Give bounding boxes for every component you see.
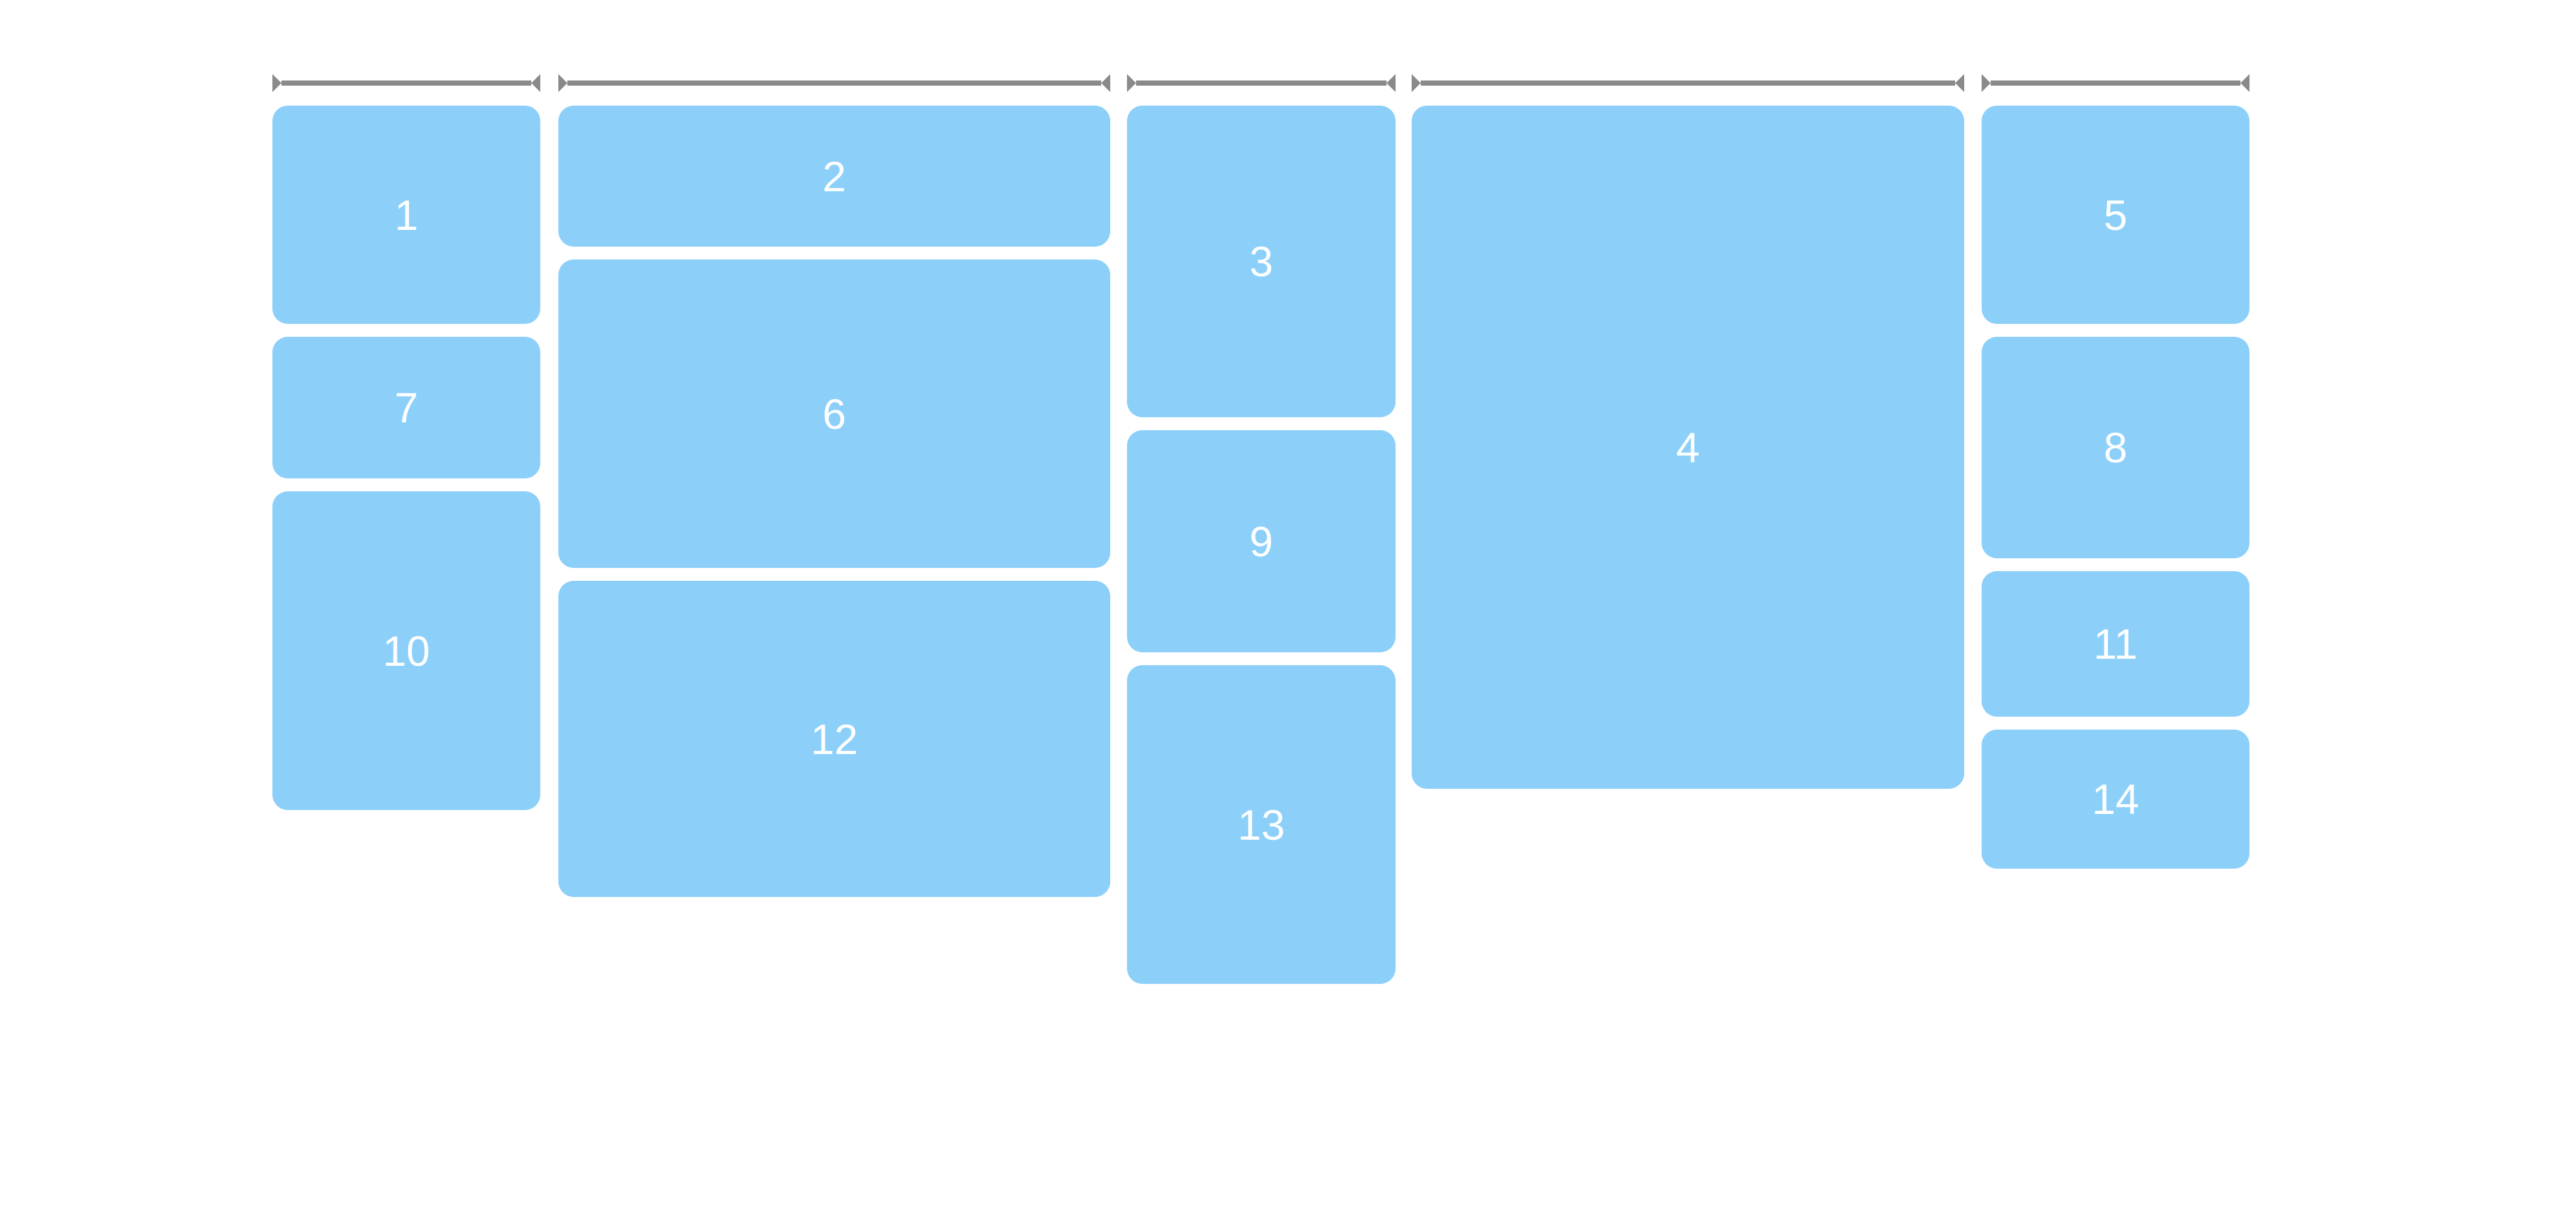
- item-label: 12: [811, 718, 858, 760]
- masonry-layout-canvas: 1 2 3 4 5 6 7 8 9 10 11 12 13 14: [0, 0, 2576, 1208]
- item-label: 13: [1238, 804, 1285, 846]
- column-ruler-1: [272, 74, 540, 92]
- column-ruler-4: [1412, 74, 1964, 92]
- column-ruler-2: [558, 74, 1110, 92]
- arrow-right-icon: [1412, 74, 1421, 92]
- masonry-item: 5: [1982, 106, 2249, 324]
- masonry-item: 1: [272, 106, 540, 324]
- masonry-item: 10: [272, 491, 540, 810]
- ruler-line: [1991, 80, 2240, 86]
- item-label: 9: [1249, 520, 1273, 563]
- item-label: 10: [383, 630, 430, 672]
- item-label: 4: [1676, 426, 1700, 469]
- item-label: 14: [2092, 778, 2139, 820]
- item-label: 5: [2104, 194, 2128, 236]
- arrow-left-icon: [1101, 74, 1110, 92]
- item-label: 6: [822, 393, 846, 435]
- item-label: 1: [395, 194, 419, 236]
- arrow-right-icon: [272, 74, 281, 92]
- masonry-item: 14: [1982, 730, 2249, 869]
- masonry-item: 11: [1982, 571, 2249, 717]
- item-label: 3: [1249, 240, 1273, 283]
- ruler-line: [567, 80, 1101, 86]
- column-ruler-3: [1127, 74, 1396, 92]
- arrow-left-icon: [1955, 74, 1964, 92]
- masonry-item: 6: [558, 260, 1110, 568]
- ruler-line: [1421, 80, 1955, 86]
- masonry-item: 8: [1982, 337, 2249, 558]
- masonry-item: 9: [1127, 430, 1396, 652]
- item-label: 11: [2094, 623, 2138, 665]
- ruler-line: [1136, 80, 1387, 86]
- masonry-item: 3: [1127, 106, 1396, 417]
- column-ruler-5: [1982, 74, 2249, 92]
- masonry-item: 7: [272, 337, 540, 478]
- arrow-left-icon: [531, 74, 540, 92]
- masonry-item: 12: [558, 581, 1110, 897]
- arrow-right-icon: [558, 74, 567, 92]
- item-label: 7: [395, 386, 419, 429]
- arrow-right-icon: [1982, 74, 1991, 92]
- masonry-item: 13: [1127, 665, 1396, 984]
- arrow-left-icon: [2240, 74, 2249, 92]
- item-label: 2: [822, 155, 846, 198]
- item-label: 8: [2104, 426, 2128, 469]
- arrow-left-icon: [1387, 74, 1396, 92]
- masonry-item: 2: [558, 106, 1110, 247]
- masonry-item: 4: [1412, 106, 1964, 789]
- ruler-line: [281, 80, 531, 86]
- arrow-right-icon: [1127, 74, 1136, 92]
